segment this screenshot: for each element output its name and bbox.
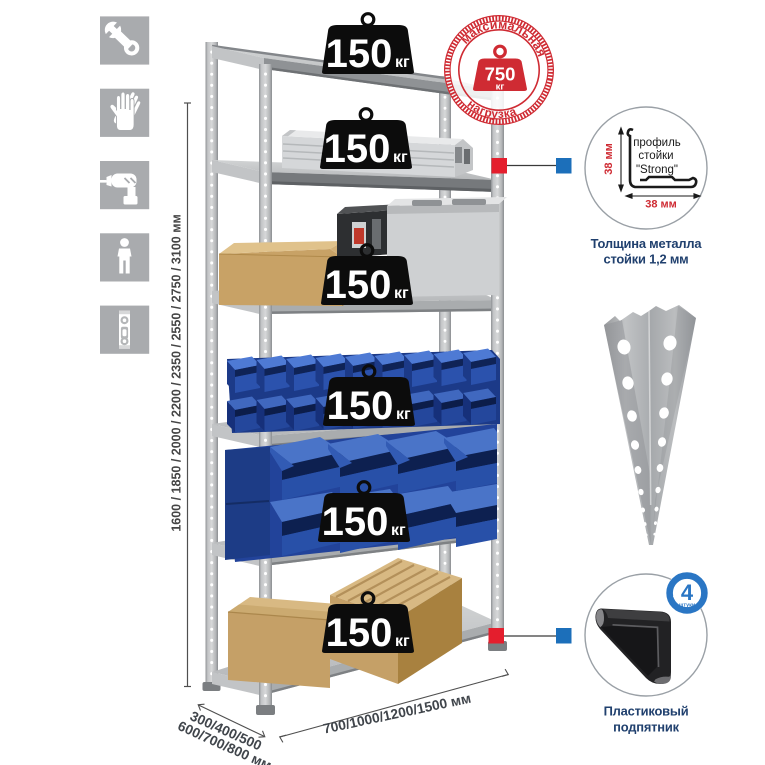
svg-text:подпятник: подпятник [613, 720, 679, 735]
svg-text:профиль: профиль [633, 137, 681, 149]
svg-text:4: 4 [681, 580, 694, 605]
svg-text:Пластиковый: Пластиковый [604, 704, 689, 719]
svg-text:Толщина металла: Толщина металла [591, 236, 703, 251]
svg-text:1600 / 1850 / 2000 / 2200 / 23: 1600 / 1850 / 2000 / 2200 / 2350 / 2550 … [170, 214, 184, 531]
svg-text:штуки: штуки [679, 603, 695, 609]
svg-text:стойки 1,2 мм: стойки 1,2 мм [603, 252, 688, 267]
svg-text:38 мм: 38 мм [645, 199, 677, 211]
svg-text:38 мм: 38 мм [603, 143, 615, 175]
svg-text:стойки: стойки [638, 150, 673, 162]
svg-text:"Strong": "Strong" [636, 164, 678, 176]
svg-text:кг: кг [496, 82, 505, 93]
